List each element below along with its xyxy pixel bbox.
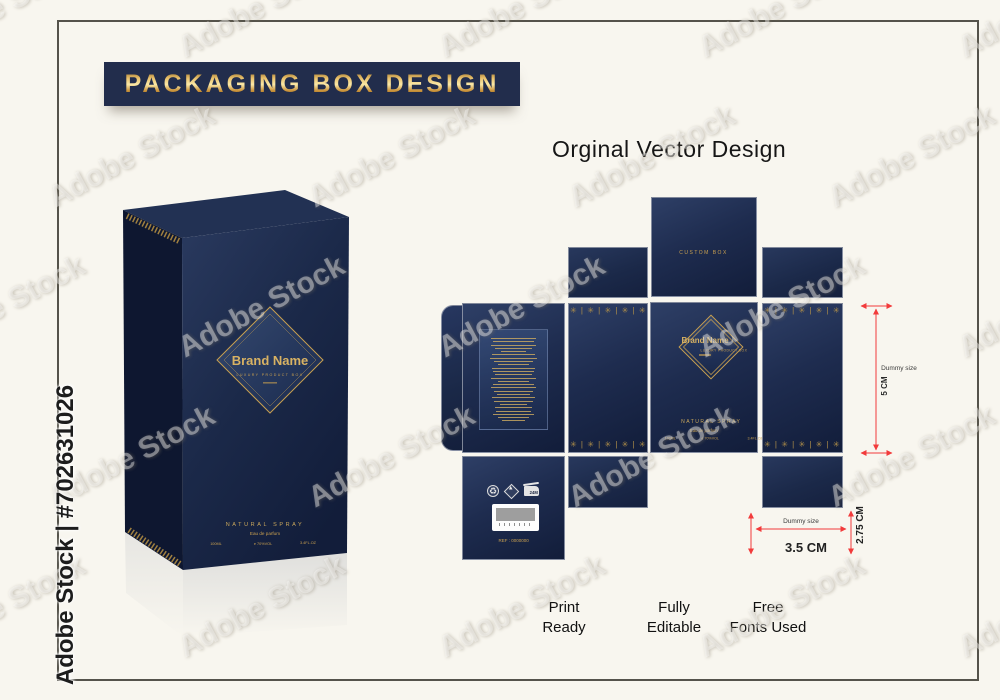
dieline-eau-de-parfum: Eau de parfum	[690, 429, 718, 432]
dieline-flap-bottom-left	[568, 456, 648, 508]
dieline-front-panel: Brand Name LUXURY PRODUCT BOX NATURAL SP…	[650, 302, 758, 453]
box-3d-mockup: Brand Name LUXURY PRODUCT BOX NATURAL SP…	[110, 185, 360, 655]
ornament-border-top: ✳ | ✳ | ✳ | ✳ | ✳ | ✳ | ✳ | ✳ | ✳ | ✳ | …	[570, 306, 646, 316]
dieline-side-panel-right: ✳ | ✳ | ✳ | ✳ | ✳ | ✳ | ✳ | ✳ | ✳ | ✳ | …	[762, 303, 843, 453]
ornament-border-bottom: ✳ | ✳ | ✳ | ✳ | ✳ | ✳ | ✳ | ✳ | ✳ | ✳ | …	[764, 440, 841, 450]
barcode-bars	[496, 508, 535, 521]
flame-glyph: ▲	[508, 485, 514, 491]
flammable-diamond-icon: ▲	[504, 483, 520, 499]
feature-print-ready: Print Ready	[514, 598, 614, 638]
ref-number-wrap: REF : 0000000	[463, 535, 564, 543]
feature-free-fonts-used: Free Fonts Used	[706, 598, 830, 638]
barcode	[492, 504, 539, 531]
ornament-border-top: ✳ | ✳ | ✳ | ✳ | ✳ | ✳ | ✳ | ✳ | ✳ | ✳ | …	[764, 306, 841, 316]
dieline-flap-bottom-right	[762, 456, 843, 508]
dieline-natural-spray-wrap: NATURAL SPRAY	[651, 416, 757, 424]
box-natural-spray: NATURAL SPRAY	[226, 522, 305, 528]
dieline-bottom-panel: ♻ ▲ 24M REF : 0000000	[462, 456, 565, 560]
box-brand-name: Brand Name	[232, 353, 309, 368]
dieline-brand-tagline-wrap: LUXURY PRODUCT BOX	[655, 345, 755, 352]
box-volume-ml: 100ML	[210, 542, 222, 546]
dieline-volume-ml: 100ML	[665, 438, 676, 441]
custom-box-label: CUSTOM BOX	[680, 250, 729, 256]
dieline-volume-row: 100ML e 70%VOL 3.4FL.OZ	[655, 435, 753, 443]
period-after-opening-24m-icon: 24M	[524, 486, 539, 496]
ornament-border-bottom: ✳ | ✳ | ✳ | ✳ | ✳ | ✳ | ✳ | ✳ | ✳ | ✳ | …	[570, 440, 646, 450]
page-title: PACKAGING BOX DESIGN	[125, 70, 500, 99]
dieline-flap-top-right	[762, 247, 843, 298]
box-brand-subline	[263, 382, 277, 384]
box-volume-e: e 70%VOL	[254, 542, 272, 546]
dieline-side-panel-left: ✳ | ✳ | ✳ | ✳ | ✳ | ✳ | ✳ | ✳ | ✳ | ✳ | …	[568, 303, 648, 453]
dieline-volume-e: e 70%VOL	[701, 438, 718, 441]
dieline-top-panel: CUSTOM BOX	[651, 197, 757, 297]
dieline-flap-top-left	[568, 247, 648, 298]
dieline-glue-flap	[441, 305, 463, 451]
dieline-back-panel	[462, 303, 565, 453]
dieline-brand-subline	[699, 354, 711, 356]
box-left-face	[123, 210, 183, 570]
barcode-digits	[499, 523, 532, 526]
box-brand-tagline: LUXURY PRODUCT BOX	[237, 373, 304, 377]
dieline-eau-de-parfum-wrap: Eau de parfum	[651, 425, 757, 433]
title-banner: PACKAGING BOX DESIGN	[104, 62, 520, 106]
dieline-brand-tagline: LUXURY PRODUCT BOX	[700, 349, 747, 351]
dieline-volume-floz: 3.4FL.OZ	[747, 438, 762, 441]
packaging-icons-row: ♻ ▲ 24M	[487, 485, 551, 497]
box-volume-floz: 3.4FL.OZ	[300, 541, 317, 545]
custom-box-label-wrap: CUSTOM BOX	[652, 242, 756, 260]
ref-number: REF : 0000000	[498, 539, 528, 543]
dieline-brand-name: Brand Name	[655, 336, 755, 345]
section-title: Orginal Vector Design	[552, 136, 786, 163]
stock-credit-text: Adobe Stock | #702631026	[52, 385, 80, 685]
recycle-icon: ♻	[487, 485, 499, 497]
dieline-natural-spray: NATURAL SPRAY	[681, 420, 741, 424]
pao-label: 24M	[530, 491, 538, 495]
box-eau-de-parfum: Eau de parfum	[250, 531, 280, 536]
dieline-brand-block: Brand Name LUXURY PRODUCT BOX	[655, 336, 755, 356]
ingredients-text-block	[479, 329, 548, 430]
